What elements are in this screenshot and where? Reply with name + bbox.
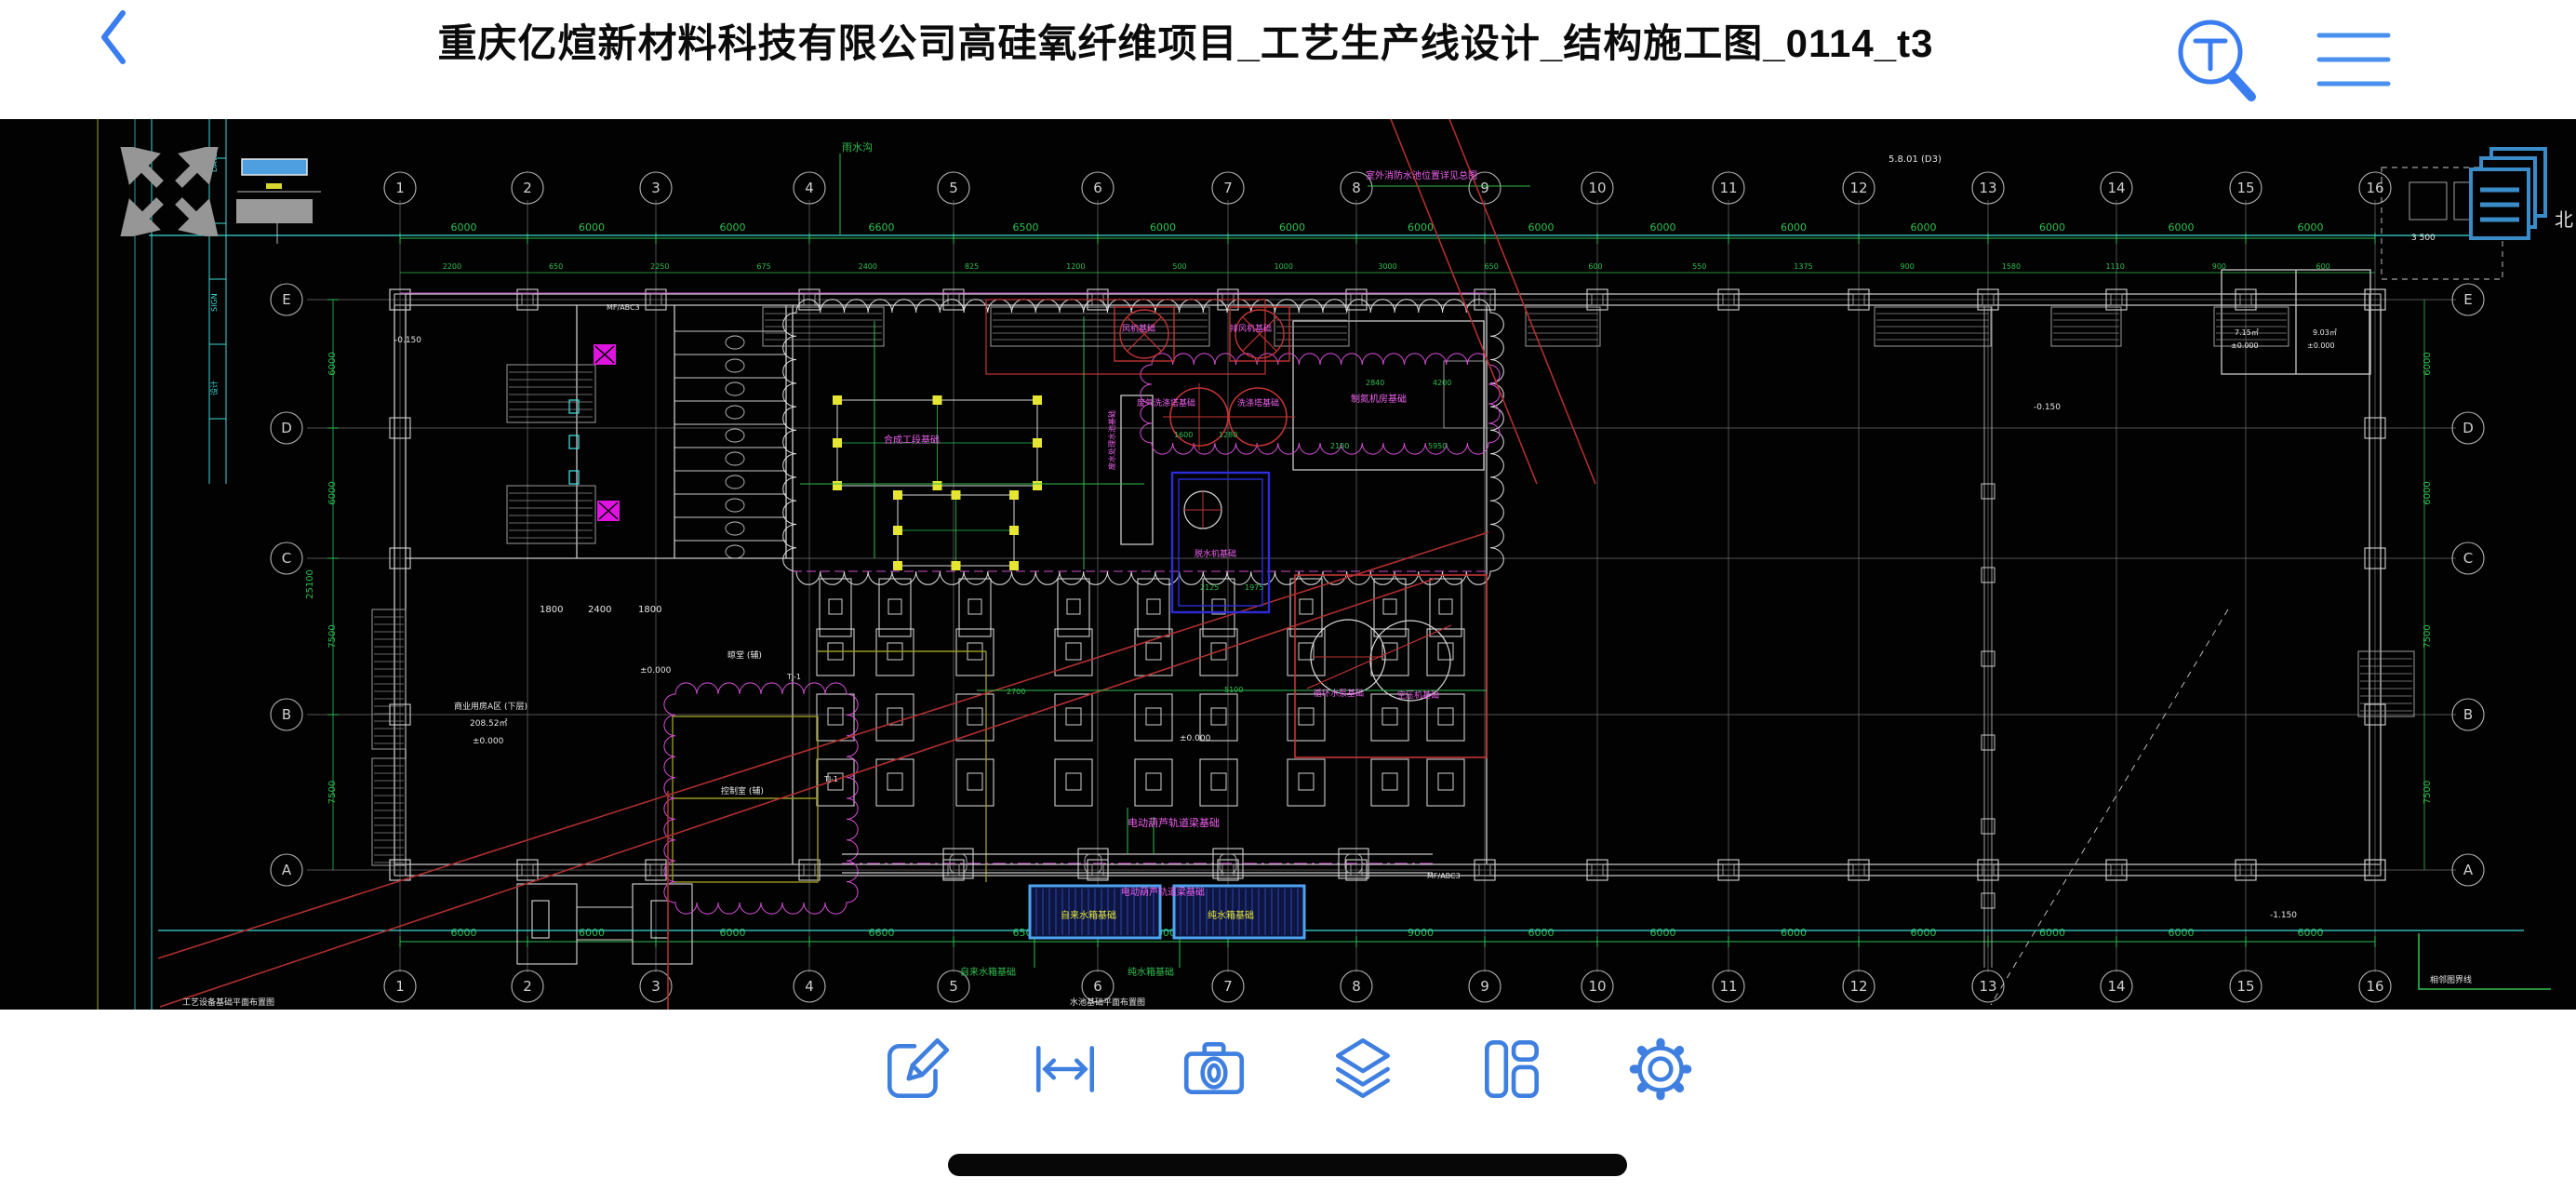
- chevron-left-icon: [93, 7, 134, 67]
- svg-text:空压机基础: 空压机基础: [1397, 689, 1439, 701]
- svg-text:1580: 1580: [2002, 262, 2021, 271]
- svg-text:4: 4: [805, 180, 814, 196]
- svg-text:2700: 2700: [1007, 688, 1025, 696]
- svg-text:SIGN: SIGN: [210, 293, 219, 312]
- svg-text:6000: 6000: [1408, 221, 1434, 234]
- svg-text:7.15㎡: 7.15㎡: [2235, 328, 2259, 337]
- svg-text:B: B: [282, 706, 291, 723]
- svg-text:1200: 1200: [1066, 262, 1085, 271]
- svg-text:3000: 3000: [1378, 262, 1396, 271]
- svg-text:6000: 6000: [1781, 221, 1807, 234]
- north-label: 北: [2555, 205, 2573, 232]
- svg-text:1975: 1975: [1245, 583, 1263, 592]
- svg-text:脱水机基础: 脱水机基础: [1195, 548, 1236, 559]
- svg-text:6000: 6000: [1911, 927, 1937, 939]
- svg-text:6: 6: [1093, 978, 1102, 995]
- svg-text:25100: 25100: [305, 569, 315, 599]
- svg-text:12: 12: [1849, 180, 1867, 196]
- svg-text:8: 8: [1352, 180, 1361, 196]
- svg-text:11: 11: [1719, 180, 1737, 196]
- svg-text:825: 825: [965, 262, 979, 271]
- svg-text:制氮机房基础: 制氮机房基础: [1351, 393, 1407, 405]
- svg-text:2100: 2100: [1330, 442, 1349, 450]
- svg-text:3 500: 3 500: [2411, 234, 2436, 243]
- svg-text:7: 7: [1223, 180, 1233, 196]
- magenta-lines: [400, 186, 1530, 571]
- camera-icon: [1178, 1033, 1250, 1105]
- svg-text:6000: 6000: [2298, 927, 2324, 939]
- window-louvers: [372, 307, 2289, 865]
- home-indicator[interactable]: [948, 1154, 1627, 1176]
- svg-text:废气洗涤塔基础: 废气洗涤塔基础: [1137, 397, 1195, 408]
- svg-text:6600: 6600: [869, 927, 895, 939]
- svg-text:2250: 2250: [650, 262, 669, 271]
- text-search-icon: [2166, 9, 2268, 110]
- svg-text:B: B: [2463, 706, 2473, 723]
- hamburger-menu-icon: [2315, 26, 2393, 93]
- svg-text:±0.000: ±0.000: [1180, 734, 1211, 743]
- svg-text:设计: 设计: [209, 381, 219, 395]
- svg-text:5.8.01 (D3): 5.8.01 (D3): [1889, 154, 1942, 165]
- svg-text:1: 1: [395, 180, 405, 196]
- fullscreen-button[interactable]: [119, 147, 220, 236]
- svg-text:15: 15: [2236, 180, 2254, 196]
- svg-text:2840: 2840: [1366, 379, 1384, 387]
- title-bar: 重庆亿煊新材料科技有限公司高硅氧纤维项目_工艺生产线设计_结构施工图_0114_…: [0, 0, 2576, 120]
- sheet-titleblock: [98, 119, 226, 1010]
- svg-text:E: E: [2463, 291, 2472, 308]
- svg-text:±0.000: ±0.000: [640, 666, 672, 676]
- svg-text:16: 16: [2366, 978, 2383, 995]
- svg-text:1800: 1800: [540, 605, 563, 615]
- axis-grid: 1122334455667788991010111112121313141415…: [271, 172, 2484, 1002]
- svg-text:洗涤塔基础: 洗涤塔基础: [1237, 397, 1279, 408]
- svg-text:循环水泵基础: 循环水泵基础: [1314, 688, 1364, 699]
- svg-text:6000: 6000: [1279, 221, 1305, 234]
- svg-text:6500: 6500: [1013, 221, 1039, 234]
- svg-text:6000: 6000: [2298, 221, 2324, 234]
- machine-bases: [517, 884, 692, 964]
- svg-text:6000: 6000: [327, 481, 338, 504]
- svg-text:6000: 6000: [1150, 221, 1176, 234]
- svg-text:15: 15: [2236, 978, 2254, 995]
- pencil-edit-icon: [880, 1033, 953, 1105]
- svg-text:2400: 2400: [588, 605, 611, 615]
- svg-text:6000: 6000: [327, 352, 338, 375]
- svg-text:±0.000: ±0.000: [473, 737, 504, 746]
- svg-text:-0.150: -0.150: [394, 336, 421, 345]
- svg-text:650: 650: [1485, 262, 1499, 271]
- svg-text:6000: 6000: [2169, 927, 2195, 939]
- svg-text:自来水箱基础: 自来水箱基础: [1061, 909, 1116, 921]
- svg-text:6600: 6600: [869, 221, 895, 234]
- svg-text:合成工段基础: 合成工段基础: [884, 434, 940, 446]
- svg-text:2: 2: [523, 180, 532, 196]
- svg-text:纯水箱基础: 纯水箱基础: [1208, 909, 1254, 921]
- layers-stack-icon: [1327, 1033, 1399, 1105]
- svg-text:4: 4: [805, 978, 814, 995]
- svg-text:900: 900: [1901, 262, 1915, 271]
- svg-text:±0.000: ±0.000: [2231, 341, 2259, 350]
- svg-text:5: 5: [949, 978, 958, 995]
- svg-text:A: A: [2463, 862, 2474, 878]
- svg-text:5: 5: [949, 180, 958, 196]
- column-footings: [817, 579, 1464, 806]
- svg-text:6000: 6000: [1650, 927, 1676, 939]
- toilet-stalls: [674, 331, 786, 558]
- svg-text:12: 12: [1849, 978, 1867, 995]
- svg-text:13: 13: [1979, 180, 1996, 196]
- svg-text:E: E: [282, 291, 290, 308]
- svg-text:6000: 6000: [720, 927, 746, 939]
- svg-text:晾堂 (辅): 晾堂 (辅): [727, 649, 762, 661]
- svg-text:10: 10: [1588, 978, 1606, 995]
- stacked-sheets-icon: [2463, 145, 2556, 242]
- svg-text:D: D: [281, 420, 292, 436]
- svg-text:11: 11: [1719, 978, 1737, 995]
- svg-text:9: 9: [1480, 978, 1489, 995]
- svg-text:7500: 7500: [327, 624, 338, 648]
- svg-text:相邻图界线: 相邻图界线: [2430, 974, 2472, 985]
- svg-text:14: 14: [2107, 180, 2125, 196]
- svg-text:A: A: [282, 862, 292, 878]
- svg-text:C: C: [282, 550, 291, 567]
- svg-text:TJ-1: TJ-1: [823, 775, 838, 783]
- svg-text:6000: 6000: [2169, 221, 2195, 234]
- layers-button[interactable]: [1326, 1032, 1400, 1106]
- svg-text:自来水箱基础: 自来水箱基础: [960, 966, 1016, 978]
- drawing-canvas[interactable]: 1122334455667788991010111112121313141415…: [0, 119, 2576, 1010]
- svg-text:6000: 6000: [451, 221, 477, 234]
- expand-arrows-icon: [119, 147, 220, 236]
- svg-text:208.52㎡: 208.52㎡: [470, 718, 508, 729]
- svg-text:5950: 5950: [1428, 442, 1447, 450]
- svg-text:8: 8: [1352, 978, 1361, 995]
- svg-text:6000: 6000: [579, 927, 605, 939]
- layout-panels-icon: [1475, 1033, 1548, 1105]
- layout-button[interactable]: [1475, 1032, 1549, 1106]
- svg-text:6000: 6000: [1528, 221, 1555, 234]
- page-title: 重庆亿煊新材料科技有限公司高硅氧纤维项目_工艺生产线设计_结构施工图_0114_…: [279, 0, 2092, 80]
- svg-text:2200: 2200: [443, 262, 461, 271]
- svg-text:6000: 6000: [579, 221, 605, 234]
- svg-text:9000: 9000: [1408, 927, 1434, 939]
- cad-plan-drawing: 1122334455667788991010111112121313141415…: [0, 119, 2576, 1010]
- sheet-legend-bars: [236, 159, 321, 244]
- sheet-pages-button[interactable]: [2463, 145, 2556, 242]
- svg-text:TJ-1: TJ-1: [786, 673, 801, 681]
- svg-text:7: 7: [1223, 978, 1233, 995]
- settings-button[interactable]: [1623, 1032, 1698, 1106]
- svg-text:排风机基础: 排风机基础: [1230, 323, 1272, 334]
- svg-text:废水处理水池基础: 废水处理水池基础: [1107, 410, 1116, 470]
- svg-text:13: 13: [1979, 978, 1996, 995]
- back-button[interactable]: [86, 7, 141, 67]
- svg-text:6000: 6000: [2039, 221, 2065, 234]
- svg-text:6000: 6000: [1781, 927, 1807, 939]
- svg-text:6000: 6000: [1650, 221, 1676, 234]
- svg-text:1800: 1800: [638, 605, 661, 615]
- svg-text:C: C: [2463, 550, 2473, 567]
- menu-button[interactable]: [2315, 26, 2393, 98]
- cad-viewer-app: { "header": { "title": "重庆亿煊新材料科技有限公司高硅氧…: [0, 0, 2576, 1191]
- svg-text:10: 10: [1588, 180, 1606, 196]
- control-rooms: [673, 651, 986, 882]
- toolbar-icons: [0, 1032, 2576, 1106]
- svg-text:7500: 7500: [327, 781, 338, 804]
- svg-text:-1.150: -1.150: [2270, 911, 2297, 920]
- svg-text:D: D: [2463, 420, 2474, 436]
- svg-text:675: 675: [756, 262, 770, 271]
- svg-text:3: 3: [651, 978, 661, 995]
- svg-text:1110: 1110: [2105, 262, 2124, 271]
- svg-text:9: 9: [1480, 180, 1489, 196]
- svg-text:6000: 6000: [2039, 927, 2065, 939]
- annotate-button[interactable]: [879, 1032, 954, 1106]
- svg-text:9.03㎡: 9.03㎡: [2313, 328, 2337, 337]
- find-text-button[interactable]: [2166, 9, 2268, 114]
- svg-text:500: 500: [1172, 262, 1186, 271]
- svg-text:2400: 2400: [859, 262, 877, 271]
- svg-text:2125: 2125: [1200, 583, 1219, 592]
- svg-text:水池基础平面布置图: 水池基础平面布置图: [1070, 997, 1145, 1008]
- svg-text:2: 2: [523, 978, 532, 995]
- magenta-fixtures: [594, 344, 620, 521]
- svg-text:6: 6: [1093, 180, 1102, 196]
- svg-text:6000: 6000: [720, 221, 746, 234]
- svg-text:控制室 (辅): 控制室 (辅): [721, 785, 764, 796]
- svg-text:风机基础: 风机基础: [1122, 323, 1155, 334]
- svg-text:14: 14: [2107, 978, 2125, 995]
- svg-text:6000: 6000: [1911, 221, 1937, 234]
- svg-text:600: 600: [1588, 262, 1602, 271]
- svg-text:1000: 1000: [1275, 262, 1293, 271]
- gear-icon: [1624, 1033, 1697, 1105]
- svg-text:纯水箱基础: 纯水箱基础: [1128, 966, 1174, 978]
- svg-text:1375: 1375: [1794, 262, 1812, 271]
- svg-text:6000: 6000: [451, 927, 477, 939]
- svg-text:1600: 1600: [1174, 431, 1193, 439]
- snapshot-button[interactable]: [1177, 1032, 1251, 1106]
- measure-button[interactable]: [1028, 1032, 1102, 1106]
- svg-text:4200: 4200: [1433, 379, 1451, 387]
- svg-text:电动葫芦轨道梁基础: 电动葫芦轨道梁基础: [1128, 816, 1220, 829]
- svg-text:MF/ABC3: MF/ABC3: [1427, 872, 1461, 880]
- dimension-chains: 6000600060006600650060006000600060006000…: [305, 221, 2433, 947]
- svg-text:550: 550: [1692, 262, 1706, 271]
- svg-text:1: 1: [395, 978, 405, 995]
- svg-text:MF/ABC3: MF/ABC3: [607, 303, 640, 312]
- svg-text:650: 650: [549, 262, 563, 271]
- svg-text:3: 3: [651, 180, 661, 196]
- svg-text:工艺设备基础平面布置图: 工艺设备基础平面布置图: [182, 997, 274, 1008]
- measure-arrows-icon: [1029, 1033, 1101, 1105]
- svg-text:商业用房A区 (下层): 商业用房A区 (下层): [454, 701, 527, 712]
- svg-text:雨水沟: 雨水沟: [842, 141, 873, 154]
- svg-text:-0.150: -0.150: [2034, 403, 2061, 412]
- svg-text:±0.000: ±0.000: [2307, 341, 2335, 350]
- svg-text:6000: 6000: [1528, 927, 1555, 939]
- svg-text:5100: 5100: [1224, 686, 1243, 694]
- svg-text:1280: 1280: [1219, 431, 1237, 439]
- svg-text:电动葫芦轨道梁基础: 电动葫芦轨道梁基础: [1121, 886, 1205, 898]
- svg-text:室外消防水池位置详见总图: 室外消防水池位置详见总图: [1366, 169, 1477, 181]
- equipment-pads: [833, 395, 1042, 570]
